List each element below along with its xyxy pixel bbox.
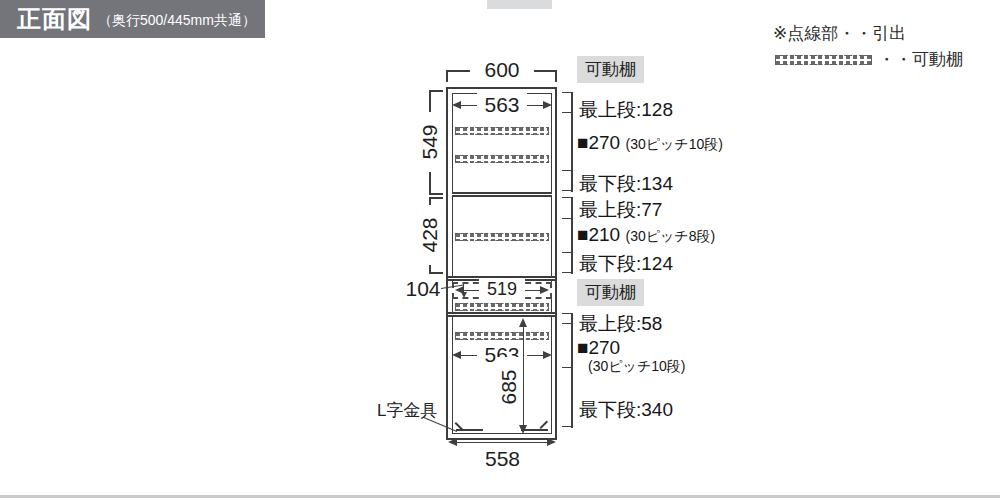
dim-middle-height: 428: [418, 205, 442, 265]
dim-519-right-arrowhead: [540, 286, 549, 294]
diagram-title-bar: 正面図 （奥行500/445mm共通）: [0, 0, 265, 38]
lower-pitch-note: (30ピッチ10段): [588, 358, 685, 376]
page-bottom-divider: [0, 495, 1000, 498]
front-view-diagram: 正面図 （奥行500/445mm共通） ※点線部・・引出 ・・可動棚 600 5…: [0, 0, 1000, 500]
upper-top-tier-label: 最上段:128: [579, 97, 673, 123]
upper-pitch-label: ■270: [577, 132, 620, 153]
middle-pitch-label: ■210: [577, 224, 620, 245]
dim-519-left-arrowhead: [455, 286, 464, 294]
middle-section-bracket: [562, 197, 573, 274]
dim-563-upper-left-arrowhead: [452, 101, 461, 109]
dim-top-width: 600: [470, 58, 534, 82]
movable-shelf-symbol-icon: [775, 55, 872, 65]
dim-558-line: [452, 442, 552, 443]
movable-shelf-symbol: [455, 303, 549, 311]
lower-pitch-label: ■270: [577, 337, 620, 359]
fixed-shelf-divider: [452, 192, 552, 197]
lower-top-tier-label: 最上段:58: [579, 311, 662, 337]
lower-bottom-tier-label: 最下段:340: [579, 397, 673, 423]
dim-563-upper-right-arrowhead: [543, 101, 552, 109]
dim-bottom-width: 558: [475, 447, 530, 471]
middle-pitch-note: (30ピッチ8段): [625, 228, 715, 244]
lower-cabinet-top-board: [448, 312, 555, 317]
top-edge-decoration: [487, 0, 552, 9]
dim-lower-height: 685: [497, 357, 521, 417]
legend-shelf-row: ・・可動棚: [775, 48, 963, 71]
legend-shelf-note: ・・可動棚: [878, 48, 963, 71]
movable-shelf-badge-lower: 可動棚: [577, 279, 644, 306]
movable-shelf-symbol: [455, 332, 549, 340]
legend-drawer-note: ※点線部・・引出: [773, 22, 906, 45]
upper-section-bracket: [562, 92, 573, 192]
dim-685-up-arrowhead: [519, 318, 527, 327]
middle-pitch-row: ■210 (30ピッチ8段): [577, 224, 715, 246]
upper-pitch-row: ■270 (30ピッチ10段): [577, 132, 723, 154]
dim-685-line: [523, 321, 524, 428]
lower-section-bracket: [562, 313, 573, 428]
dim-drawer-height: 104: [402, 277, 444, 301]
dim-563-lower-left-arrowhead: [452, 351, 461, 359]
dim-upper-inner-width: 563: [477, 93, 527, 117]
movable-shelf-symbol: [455, 127, 549, 135]
upper-pitch-note: (30ピッチ10段): [625, 136, 722, 152]
dim-upper-height: 549: [418, 112, 442, 172]
movable-shelf-badge-upper: 可動棚: [577, 56, 644, 83]
page-title: 正面図: [17, 3, 92, 35]
page-subtitle: （奥行500/445mm共通）: [98, 12, 256, 30]
movable-shelf-symbol: [455, 233, 549, 241]
l-bracket-fitting-right: [521, 429, 548, 431]
dim-558-right-arrowhead: [547, 438, 556, 446]
upper-bottom-tier-label: 最下段:134: [579, 171, 673, 197]
dim-563-lower-right-arrowhead: [543, 351, 552, 359]
middle-bottom-tier-label: 最下段:124: [579, 251, 673, 277]
middle-top-tier-label: 最上段:77: [579, 197, 662, 223]
dim-drawer-width: 519: [479, 279, 525, 300]
movable-shelf-symbol: [455, 155, 549, 163]
dim-558-left-arrowhead: [448, 438, 457, 446]
